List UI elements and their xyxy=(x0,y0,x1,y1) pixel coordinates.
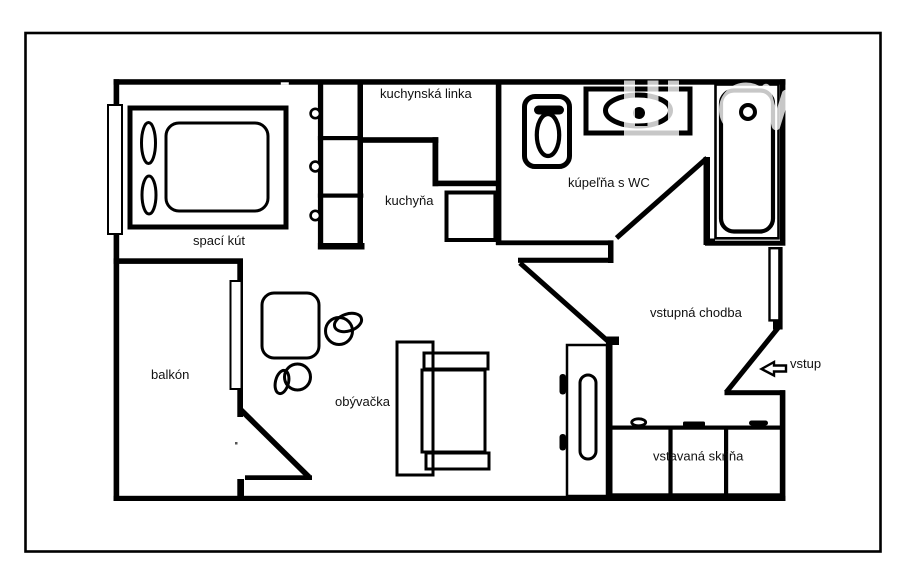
svg-text:vstavaná skriňa: vstavaná skriňa xyxy=(653,449,744,464)
svg-text:kuchyňa: kuchyňa xyxy=(385,193,434,208)
svg-text:obývačka: obývačka xyxy=(335,394,391,409)
svg-text:balkón: balkón xyxy=(151,367,189,382)
svg-text:vstupná chodba: vstupná chodba xyxy=(650,305,743,320)
svg-text:kuchynská linka: kuchynská linka xyxy=(380,86,473,101)
svg-text:spací kút: spací kút xyxy=(193,233,245,248)
svg-text:kúpeľňa s WC: kúpeľňa s WC xyxy=(568,175,650,190)
svg-text:vstup: vstup xyxy=(790,356,821,371)
